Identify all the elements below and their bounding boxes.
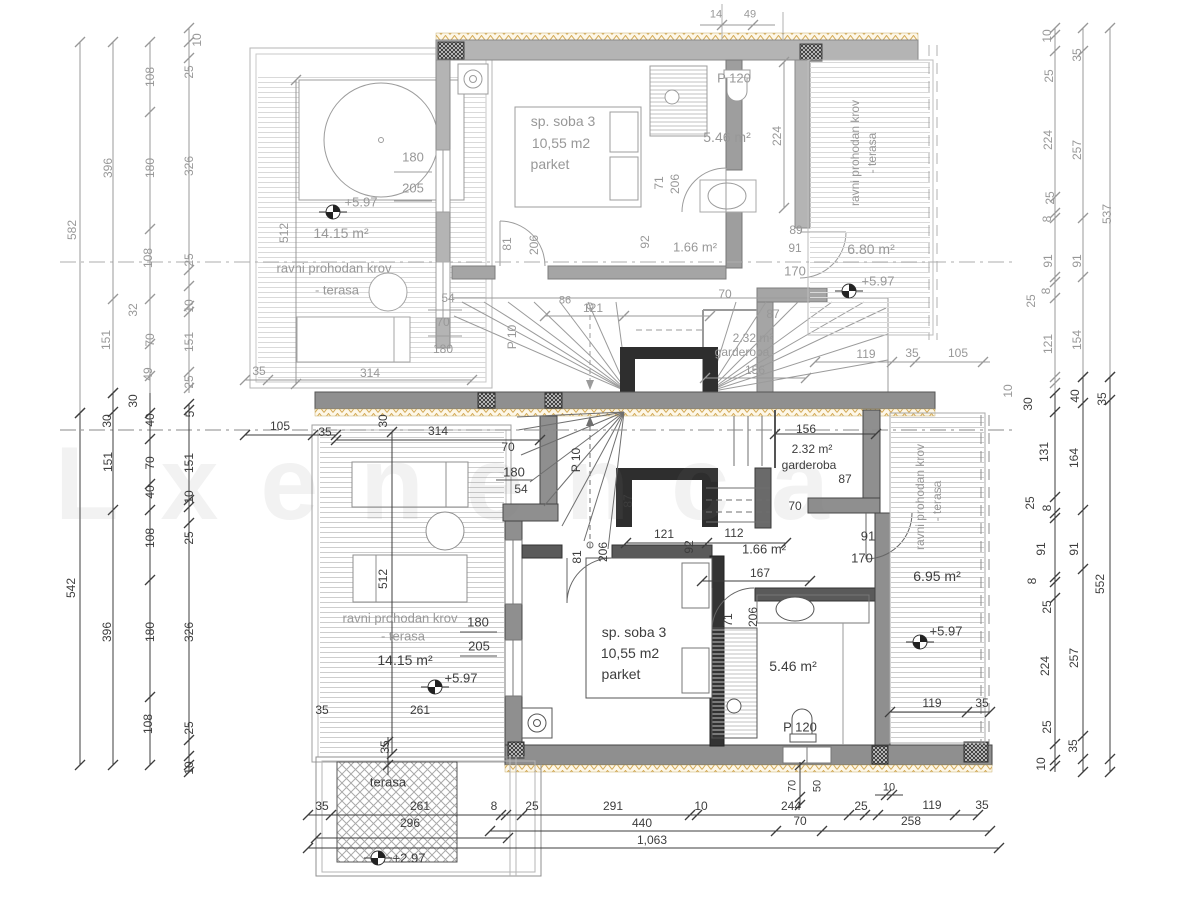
lower-floor-plan — [312, 392, 992, 876]
lower-right-terrace — [890, 413, 989, 745]
upper-floor-plan — [250, 4, 937, 392]
lower-terasa — [316, 757, 541, 876]
lower-left-terrace — [312, 425, 511, 762]
party-wall — [315, 392, 935, 416]
toilet — [727, 78, 747, 101]
shower — [650, 66, 707, 136]
door-arc — [500, 221, 545, 266]
sink — [708, 183, 746, 209]
floor-plan-canvas: Lxenenca 1025108582396180326108251513270… — [0, 0, 1200, 900]
terrace-table — [426, 512, 464, 550]
terasa-deck — [337, 762, 457, 862]
lounger — [297, 317, 410, 362]
upper-left-terrace — [250, 48, 492, 388]
toilet — [792, 709, 812, 734]
upper-right-terrace — [808, 45, 937, 340]
bed — [586, 558, 712, 698]
washer — [458, 64, 488, 94]
floor-plan-drawing — [0, 0, 1200, 900]
hot-tub — [324, 83, 438, 197]
shower — [712, 628, 757, 738]
terrace-table — [369, 273, 407, 311]
washer — [522, 708, 552, 738]
lounger — [353, 555, 467, 602]
sink — [776, 597, 814, 621]
lounger — [352, 462, 468, 507]
